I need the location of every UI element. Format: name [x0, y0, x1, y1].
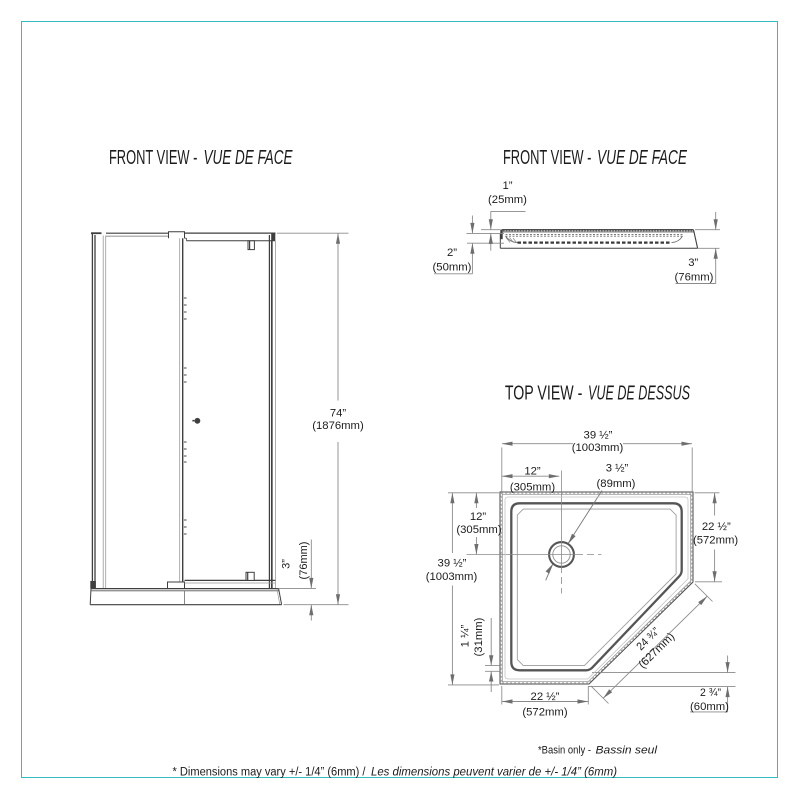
svg-text:12”: 12” — [524, 465, 541, 477]
svg-text:VUE DE FACE: VUE DE FACE — [204, 147, 293, 169]
svg-text:22 ½”: 22 ½” — [702, 521, 731, 533]
svg-text:(76mm): (76mm) — [675, 272, 714, 284]
svg-text:2 ¾”: 2 ¾” — [700, 687, 721, 699]
svg-text:VUE DE DESSUS: VUE DE DESSUS — [588, 383, 690, 405]
svg-text:3”: 3” — [688, 257, 698, 269]
svg-text:(305mm): (305mm) — [510, 481, 555, 493]
svg-text:* Dimensions may vary +/- 1/4”: * Dimensions may vary +/- 1/4” (6mm) / — [173, 767, 367, 779]
svg-text:22 ½”: 22 ½” — [531, 691, 560, 703]
svg-text:(76mm): (76mm) — [298, 542, 310, 580]
svg-text:Bassin seul: Bassin seul — [596, 744, 658, 756]
svg-text:(50mm): (50mm) — [433, 262, 472, 274]
svg-text:1”: 1” — [502, 180, 512, 192]
svg-text:(31mm): (31mm) — [473, 617, 485, 656]
svg-text:*Basin only -: *Basin only - — [538, 744, 591, 756]
svg-text:39 ½”: 39 ½” — [584, 429, 613, 441]
svg-text:1 ¼”: 1 ¼” — [460, 624, 472, 647]
svg-text:Les dimensions peuvent varier: Les dimensions peuvent varier de +/- 1/4… — [371, 767, 617, 779]
svg-text:(60mm): (60mm) — [690, 701, 729, 713]
svg-text:(305mm): (305mm) — [456, 524, 501, 536]
svg-text:(1876mm): (1876mm) — [312, 420, 364, 432]
svg-text:3 ½”: 3 ½” — [606, 463, 629, 475]
svg-text:3”: 3” — [281, 559, 293, 569]
svg-text:2”: 2” — [447, 247, 457, 259]
svg-text:(1003mm): (1003mm) — [572, 442, 624, 454]
svg-text:12”: 12” — [470, 511, 487, 523]
svg-text:74”: 74” — [330, 407, 347, 419]
svg-text:VUE DE FACE: VUE DE FACE — [597, 147, 687, 169]
svg-text:TOP VIEW -: TOP VIEW - — [505, 383, 583, 405]
svg-text:39 ½”: 39 ½” — [438, 558, 467, 570]
svg-text:(25mm): (25mm) — [488, 194, 527, 206]
svg-text:FRONT VIEW -: FRONT VIEW - — [503, 147, 592, 169]
svg-text:(1003mm): (1003mm) — [426, 571, 478, 583]
svg-text:(572mm): (572mm) — [522, 706, 567, 718]
svg-text:FRONT VIEW -: FRONT VIEW - — [109, 147, 198, 169]
svg-text:(572mm): (572mm) — [693, 535, 738, 547]
svg-text:(89mm): (89mm) — [597, 478, 636, 490]
